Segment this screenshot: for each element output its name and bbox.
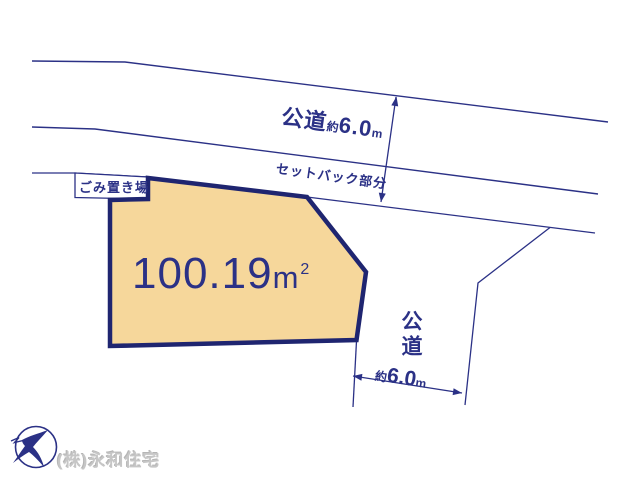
diagram-drawing — [0, 0, 640, 480]
side-road-width-value: 6.0 — [385, 364, 417, 391]
plot-area-exponent: 2 — [300, 261, 310, 278]
top-road-width-value: 6.0 — [337, 112, 374, 141]
side-width-arrowhead-right — [453, 388, 462, 395]
side-road-right-edge — [465, 228, 550, 406]
setback-line-right — [307, 197, 595, 233]
plot-area-unit: m — [273, 260, 300, 295]
crane-bird-logo-icon — [11, 427, 57, 468]
garbage-area-label: ごみ置き場 — [79, 181, 149, 194]
side-road-label: 公道 — [400, 310, 421, 360]
side-road-left-edge — [353, 341, 357, 407]
plot-area-value: 100.19 — [132, 249, 273, 298]
plot-area-label: 100.19m2 — [132, 252, 310, 296]
top-road-unit: m — [371, 126, 384, 141]
company-name: (株)永和住宅 — [57, 452, 160, 469]
side-road-unit: m — [415, 375, 428, 390]
top-width-arrowhead-down — [379, 193, 386, 202]
land-plot-diagram: 公道約6.0m セットバック部分 ごみ置き場 100.19m2 公道 約6.0m… — [0, 0, 640, 480]
top-width-arrowhead-up — [391, 97, 398, 107]
